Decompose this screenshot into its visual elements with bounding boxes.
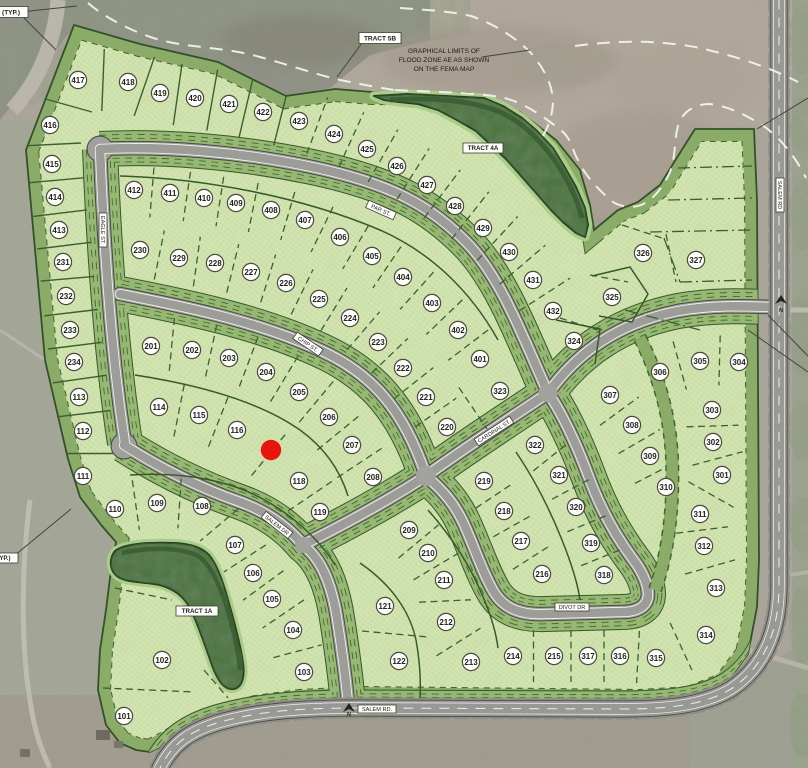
svg-text:316: 316 <box>613 652 627 661</box>
svg-text:227: 227 <box>244 268 258 277</box>
svg-text:202: 202 <box>185 346 199 355</box>
svg-text:324: 324 <box>567 337 581 346</box>
svg-text:317: 317 <box>581 652 595 661</box>
svg-text:313: 313 <box>709 584 723 593</box>
svg-text:232: 232 <box>59 292 73 301</box>
svg-text:105: 105 <box>265 595 279 604</box>
svg-text:404: 404 <box>396 273 410 282</box>
svg-text:113: 113 <box>73 393 86 402</box>
svg-text:109: 109 <box>150 499 164 508</box>
svg-text:YP.): YP.) <box>0 556 10 562</box>
svg-text:111: 111 <box>77 472 90 481</box>
svg-text:207: 207 <box>345 441 359 450</box>
svg-text:429: 429 <box>476 224 490 233</box>
svg-text:SALEM RD: SALEM RD <box>776 181 782 210</box>
svg-text:GRAPHICAL LIMITS OF: GRAPHICAL LIMITS OF <box>408 48 480 55</box>
svg-text:107: 107 <box>228 541 242 550</box>
svg-text:314: 314 <box>699 631 713 640</box>
svg-text:413: 413 <box>52 226 66 235</box>
svg-text:322: 322 <box>528 441 542 450</box>
svg-text:403: 403 <box>425 299 439 308</box>
svg-text:309: 309 <box>643 452 657 461</box>
svg-text:ON THE FEMA MAP: ON THE FEMA MAP <box>414 66 475 73</box>
svg-text:411: 411 <box>164 189 177 198</box>
svg-text:417: 417 <box>71 76 85 85</box>
svg-text:320: 320 <box>569 503 583 512</box>
svg-text:112: 112 <box>77 427 90 436</box>
svg-text:407: 407 <box>298 216 312 225</box>
svg-text:118: 118 <box>293 477 306 486</box>
svg-text:321: 321 <box>552 471 566 480</box>
svg-text:216: 216 <box>535 570 549 579</box>
svg-text:203: 203 <box>222 354 236 363</box>
svg-text:Y (TYP.): Y (TYP.) <box>0 9 20 16</box>
svg-text:226: 226 <box>279 279 293 288</box>
svg-text:319: 319 <box>584 539 598 548</box>
svg-text:424: 424 <box>327 130 341 139</box>
svg-text:423: 423 <box>292 117 306 126</box>
svg-text:103: 103 <box>297 668 311 677</box>
svg-text:206: 206 <box>322 413 336 422</box>
svg-text:215: 215 <box>547 652 561 661</box>
svg-text:230: 230 <box>133 246 147 255</box>
svg-text:110: 110 <box>109 505 122 514</box>
svg-text:221: 221 <box>419 393 433 402</box>
svg-text:229: 229 <box>172 254 186 263</box>
svg-text:318: 318 <box>597 571 611 580</box>
svg-text:115: 115 <box>193 411 206 420</box>
svg-text:422: 422 <box>256 108 270 117</box>
svg-text:418: 418 <box>121 78 135 87</box>
svg-text:312: 312 <box>697 542 711 551</box>
svg-text:224: 224 <box>343 314 357 323</box>
svg-text:302: 302 <box>706 438 720 447</box>
svg-text:231: 231 <box>56 258 70 267</box>
svg-text:432: 432 <box>546 307 560 316</box>
svg-text:122: 122 <box>392 657 406 666</box>
svg-text:220: 220 <box>440 423 454 432</box>
svg-text:416: 416 <box>43 121 57 130</box>
svg-text:FLOOD ZONE AE AS SHOWN: FLOOD ZONE AE AS SHOWN <box>399 57 490 64</box>
svg-text:TRACT 4A: TRACT 4A <box>468 145 499 152</box>
svg-text:119: 119 <box>314 508 327 517</box>
svg-text:327: 327 <box>689 256 703 265</box>
svg-text:306: 306 <box>653 368 667 377</box>
svg-text:101: 101 <box>117 712 131 721</box>
svg-text:222: 222 <box>396 364 410 373</box>
svg-text:307: 307 <box>603 391 617 400</box>
svg-text:311: 311 <box>694 510 707 519</box>
svg-text:421: 421 <box>222 100 236 109</box>
svg-text:408: 408 <box>264 206 278 215</box>
svg-text:SALEM RD.: SALEM RD. <box>362 707 393 713</box>
svg-text:114: 114 <box>153 403 166 412</box>
svg-text:420: 420 <box>188 94 202 103</box>
svg-text:426: 426 <box>390 162 404 171</box>
svg-text:415: 415 <box>45 160 59 169</box>
svg-text:412: 412 <box>127 186 141 195</box>
svg-text:225: 225 <box>312 295 326 304</box>
svg-text:310: 310 <box>659 483 673 492</box>
svg-text:108: 108 <box>195 502 209 511</box>
svg-text:TRACT 5B: TRACT 5B <box>364 35 396 42</box>
svg-text:430: 430 <box>502 248 516 257</box>
svg-text:218: 218 <box>497 507 511 516</box>
svg-text:209: 209 <box>402 526 416 535</box>
svg-text:208: 208 <box>366 473 380 482</box>
svg-text:121: 121 <box>378 602 392 611</box>
svg-text:104: 104 <box>286 626 300 635</box>
svg-text:217: 217 <box>514 537 528 546</box>
svg-text:211: 211 <box>438 576 451 585</box>
svg-text:116: 116 <box>231 426 244 435</box>
svg-text:213: 213 <box>464 658 478 667</box>
svg-text:102: 102 <box>155 656 169 665</box>
svg-text:204: 204 <box>259 368 273 377</box>
svg-text:425: 425 <box>360 145 374 154</box>
svg-text:325: 325 <box>605 293 619 302</box>
svg-text:315: 315 <box>649 654 663 663</box>
svg-text:406: 406 <box>333 233 347 242</box>
svg-text:233: 233 <box>63 326 77 335</box>
svg-text:N: N <box>779 308 783 314</box>
svg-text:106: 106 <box>246 569 260 578</box>
svg-text:414: 414 <box>48 193 62 202</box>
svg-text:234: 234 <box>67 358 81 367</box>
svg-text:201: 201 <box>144 342 158 351</box>
svg-text:DIVOT DR: DIVOT DR <box>559 605 586 611</box>
svg-text:431: 431 <box>526 276 540 285</box>
svg-text:409: 409 <box>229 199 243 208</box>
svg-text:212: 212 <box>439 618 453 627</box>
svg-text:410: 410 <box>197 194 211 203</box>
svg-text:427: 427 <box>420 181 434 190</box>
svg-text:308: 308 <box>625 421 639 430</box>
svg-text:N: N <box>347 712 351 718</box>
svg-text:405: 405 <box>365 252 379 261</box>
svg-text:305: 305 <box>693 357 707 366</box>
svg-text:223: 223 <box>371 338 385 347</box>
svg-text:326: 326 <box>636 249 650 258</box>
svg-text:419: 419 <box>153 89 167 98</box>
svg-text:205: 205 <box>292 388 306 397</box>
svg-text:214: 214 <box>506 652 520 661</box>
svg-text:428: 428 <box>448 202 462 211</box>
svg-text:304: 304 <box>732 358 746 367</box>
svg-text:TRACT 1A: TRACT 1A <box>182 608 213 615</box>
svg-text:219: 219 <box>477 477 491 486</box>
svg-text:303: 303 <box>705 406 719 415</box>
svg-text:228: 228 <box>208 259 222 268</box>
svg-text:210: 210 <box>421 549 435 558</box>
svg-text:301: 301 <box>715 471 729 480</box>
svg-text:EAGLE ST.: EAGLE ST. <box>99 216 105 245</box>
svg-text:323: 323 <box>493 387 507 396</box>
svg-text:401: 401 <box>473 355 487 364</box>
svg-text:402: 402 <box>451 326 465 335</box>
